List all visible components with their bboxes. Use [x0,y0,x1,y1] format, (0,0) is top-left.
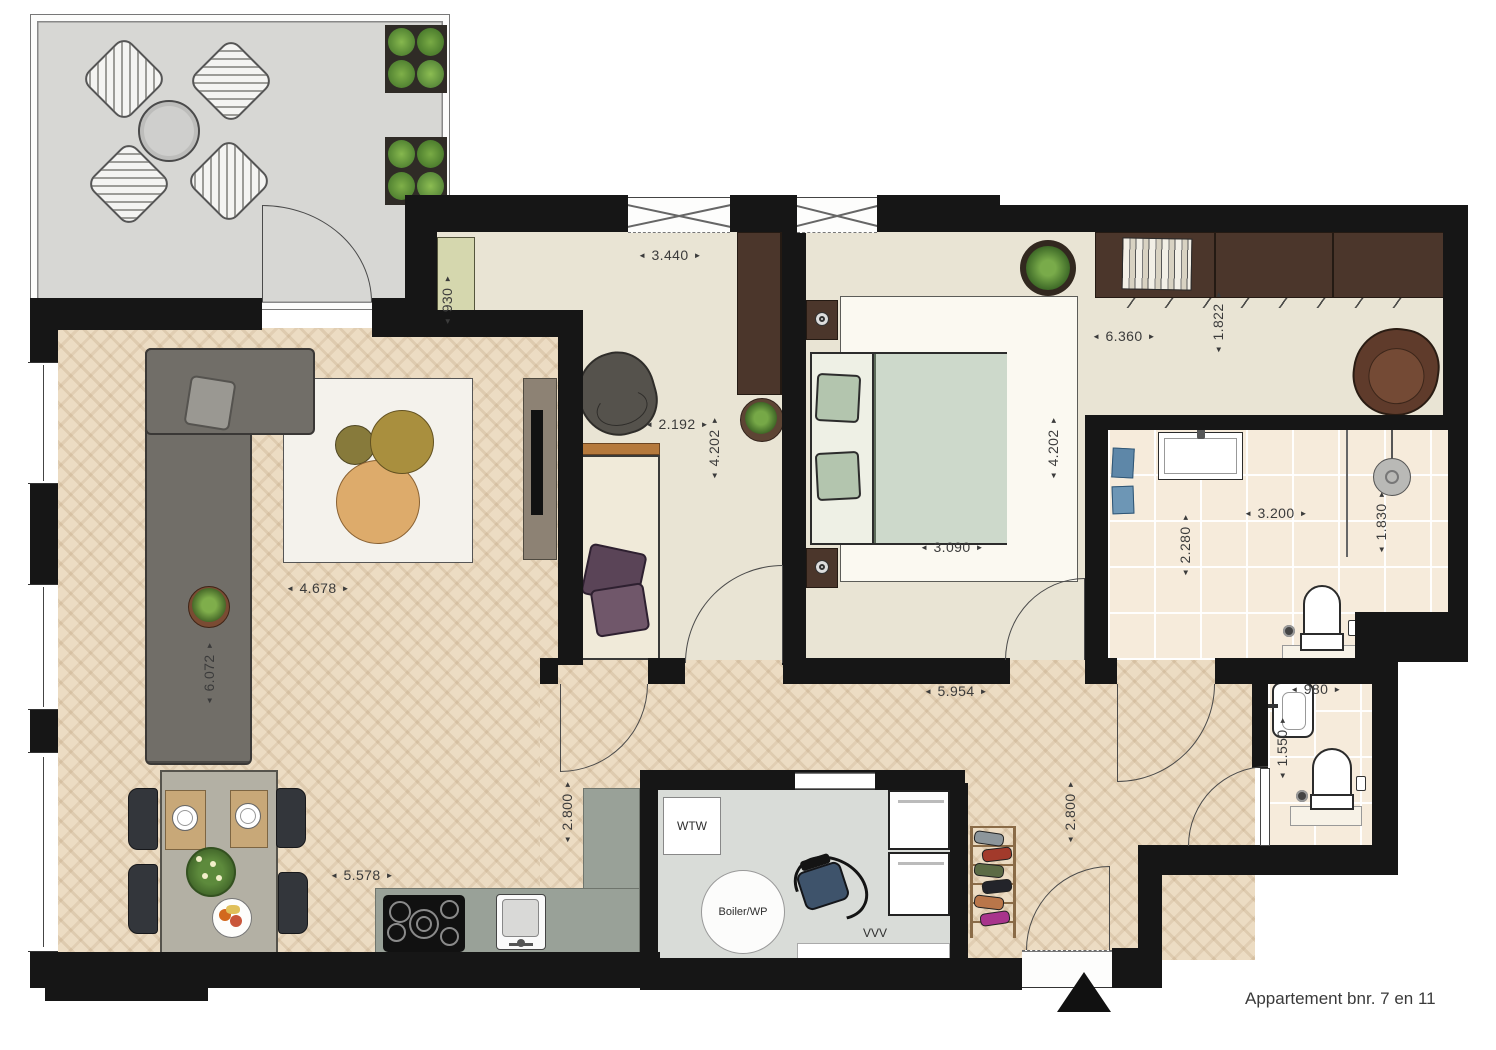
dining-chair [128,788,158,850]
study-plant-leaves [745,402,777,434]
kitchen-sink [496,894,546,950]
bathroom-toilet [1303,585,1341,637]
shower-glass [1346,430,1348,557]
dim-shower-zone-depth: 1.830 [1373,490,1389,554]
study-wardrobe [737,232,782,395]
wall-segment [1443,205,1468,430]
living-plant-leaves [192,588,226,622]
terrace-planter [385,25,447,93]
dryer [888,852,950,916]
dim-dressing-width: 6.360 [1092,328,1156,344]
wall-segment [648,658,685,684]
dim-bedroom-depth: 4.202 [1045,416,1061,480]
wall-segment [1085,415,1108,665]
dim-wardrobe-depth: 1.822 [1210,290,1226,354]
dim-toilet-depth: 1.550 [1274,716,1290,780]
louver-door [795,772,875,790]
wall-segment [877,195,1000,232]
wall-segment [30,952,660,988]
tv-screen [531,410,543,515]
dining-chair [276,788,306,848]
floor-plan: WTW Boiler/WP VVV [0,0,1496,1050]
vent-label: VVV [850,925,900,941]
wall-segment [405,310,583,337]
toilet [1312,748,1352,800]
wall-segment [558,335,583,665]
bed-pillow [815,451,861,501]
wall-segment [730,195,797,232]
dim-study-depth: 4.202 [706,416,722,480]
wall-segment [640,770,658,962]
dim-bathroom-width: 3.200 [1244,505,1308,521]
dim-study-width: 2.192 [645,416,709,432]
boiler-label: Boiler/WP [701,870,785,954]
entrance-arrow [1057,972,1111,1012]
dim-bathroom-depth: 2.280 [1177,513,1193,577]
dim-hallway-width: 5.954 [924,683,988,699]
towel [1111,447,1135,478]
cooktop [383,895,465,952]
wall-segment [437,195,628,232]
daybed-pillow [590,582,651,638]
coffee-table-gold [370,410,434,474]
towel [1112,486,1135,515]
dim-kitchen-zone-depth: 2.800 [559,780,575,844]
plate [235,803,261,829]
wall-segment [1138,845,1162,955]
wall-segment [1372,655,1398,850]
bedroom-plant-leaves [1026,246,1070,290]
wall-segment [1448,418,1468,618]
shower-arm [1391,428,1393,462]
dining-chair [128,864,158,934]
bathroom-toilet-base [1300,633,1344,651]
terrace-door-opening [797,197,877,233]
window [28,752,58,952]
wall-segment [1085,658,1117,684]
sofa-pillow [183,375,236,432]
terrace-door-opening [628,197,730,233]
wall-segment [950,783,968,958]
flush-button [1356,776,1366,791]
floor-drain [1296,790,1308,802]
bedside-lamp [815,560,829,574]
wall-segment [1150,845,1398,875]
coffee-table-olive [335,425,375,465]
dim-kitchen-width: 5.578 [330,867,394,883]
dim-living-width: 4.678 [286,580,350,596]
bathroom-sink [1158,432,1243,480]
dim-study-top-width: 3.440 [638,247,702,263]
plan-title: Appartement bnr. 7 en 11 [1245,989,1436,1009]
window [28,362,58,484]
hanger-rail [1126,298,1433,308]
terrace-table [138,100,200,162]
plate [172,805,198,831]
wall-segment [783,658,1010,684]
dim-cabinet-width: 930 [439,274,455,325]
toilet-base [1310,794,1354,810]
wall-segment [30,298,262,330]
dim-hall-zone-depth: 2.800 [1062,780,1078,844]
bed-pillow [815,373,861,423]
dim-toilet-width: 980 [1290,681,1341,697]
bedside-lamp [815,312,829,326]
washer [888,790,950,850]
wall-segment [1085,415,1448,430]
window [28,584,58,710]
wtw-label: WTW [663,797,721,855]
wall-segment [640,958,1022,990]
wall-segment [1252,660,1268,768]
dim-bedroom-width: 3.090 [920,539,984,555]
dim-living-depth: 6.072 [201,641,217,705]
floor-drain [1283,625,1295,637]
fruit-bowl [212,898,252,938]
books [1122,237,1193,290]
wall-segment [45,985,208,1001]
wall-segment [782,230,806,665]
flower-bouquet [186,847,236,897]
wall-segment [990,205,1468,232]
dining-chair [278,872,308,934]
wall-segment [540,658,558,684]
daybed-headboard [578,443,660,455]
